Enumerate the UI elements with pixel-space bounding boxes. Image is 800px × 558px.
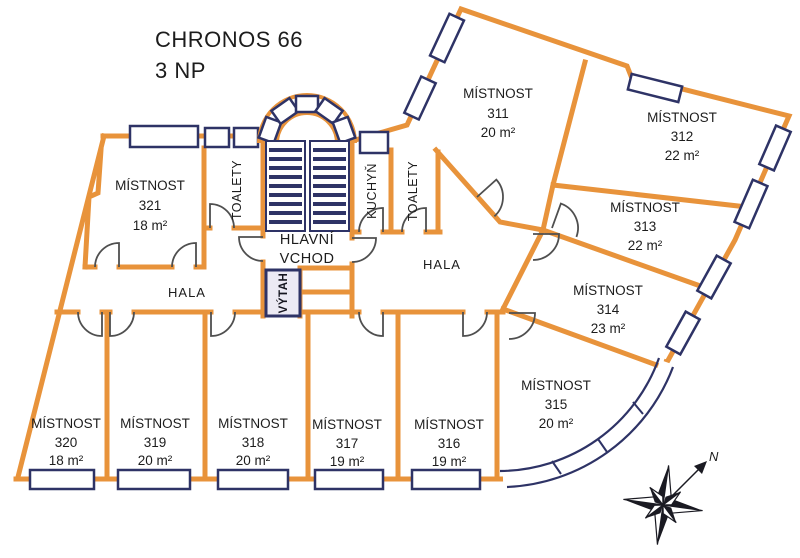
room-316-name: MÍSTNOST xyxy=(414,417,484,432)
room-317-area: 19 m² xyxy=(330,454,365,469)
room-314-area: 23 m² xyxy=(591,321,626,336)
room-316-number: 316 xyxy=(438,436,461,451)
main-entrance-label-2: VCHOD xyxy=(280,251,335,267)
room-320-number: 320 xyxy=(55,435,78,450)
room-319-number: 319 xyxy=(144,435,167,450)
elevator-label: VÝTAH xyxy=(277,273,290,314)
room-319-area: 20 m² xyxy=(138,453,173,468)
toalety-right-label: TOALETY xyxy=(406,161,420,221)
kuchyn-label: KUCHYŇ xyxy=(364,163,379,219)
room-311-area: 20 m² xyxy=(481,125,516,140)
toalety-left-label: TOALETY xyxy=(230,160,244,220)
door-room-313 xyxy=(552,204,585,237)
plan-floor: 3 NP xyxy=(155,58,206,83)
main-entrance-label-1: HLAVNÍ xyxy=(280,231,334,248)
building-walls xyxy=(16,9,789,479)
compass-north-label: N xyxy=(709,449,719,464)
room-318-name: MÍSTNOST xyxy=(218,416,288,431)
stair-treads xyxy=(269,150,346,222)
room-311-number: 311 xyxy=(487,106,509,121)
room-315-number: 315 xyxy=(545,397,568,412)
room-316-area: 19 m² xyxy=(432,454,467,469)
floor-plan-page: VÝTAH CHRONOS 66 3 NP MÍSTNOST 321 18 m²… xyxy=(0,0,800,558)
staircase xyxy=(266,141,349,231)
room-313-area: 22 m² xyxy=(628,238,663,253)
compass-rose: N xyxy=(618,449,719,550)
room-317-name: MÍSTNOST xyxy=(312,417,382,432)
room-318-area: 20 m² xyxy=(236,453,271,468)
room-321-area: 18 m² xyxy=(133,218,168,233)
hala-left-label: HALA xyxy=(168,285,206,300)
hala-right-label: HALA xyxy=(423,257,461,272)
elevator: VÝTAH xyxy=(266,270,300,316)
room-315-name: MÍSTNOST xyxy=(521,378,591,393)
room-321-name: MÍSTNOST xyxy=(115,178,185,193)
room-318-number: 318 xyxy=(242,435,265,450)
room-317-number: 317 xyxy=(336,436,359,451)
room-314-name: MÍSTNOST xyxy=(573,283,643,298)
floor-plan-canvas: VÝTAH CHRONOS 66 3 NP MÍSTNOST 321 18 m²… xyxy=(0,0,800,558)
room-313-name: MÍSTNOST xyxy=(610,200,680,215)
room-313-number: 313 xyxy=(634,219,657,234)
room-312-number: 312 xyxy=(671,129,694,144)
room-312-area: 22 m² xyxy=(665,148,700,163)
room-319-name: MÍSTNOST xyxy=(120,416,190,431)
entrance-arch xyxy=(259,95,356,143)
room-320-area: 18 m² xyxy=(49,453,84,468)
room-321-number: 321 xyxy=(139,198,162,213)
room-315-area: 20 m² xyxy=(539,416,574,431)
room-320-name: MÍSTNOST xyxy=(31,416,101,431)
door-room-311 xyxy=(477,180,514,217)
room-312-name: MÍSTNOST xyxy=(647,110,717,125)
room-311-name: MÍSTNOST xyxy=(463,86,533,101)
plan-title: CHRONOS 66 xyxy=(155,27,303,52)
room-314-number: 314 xyxy=(597,302,620,317)
